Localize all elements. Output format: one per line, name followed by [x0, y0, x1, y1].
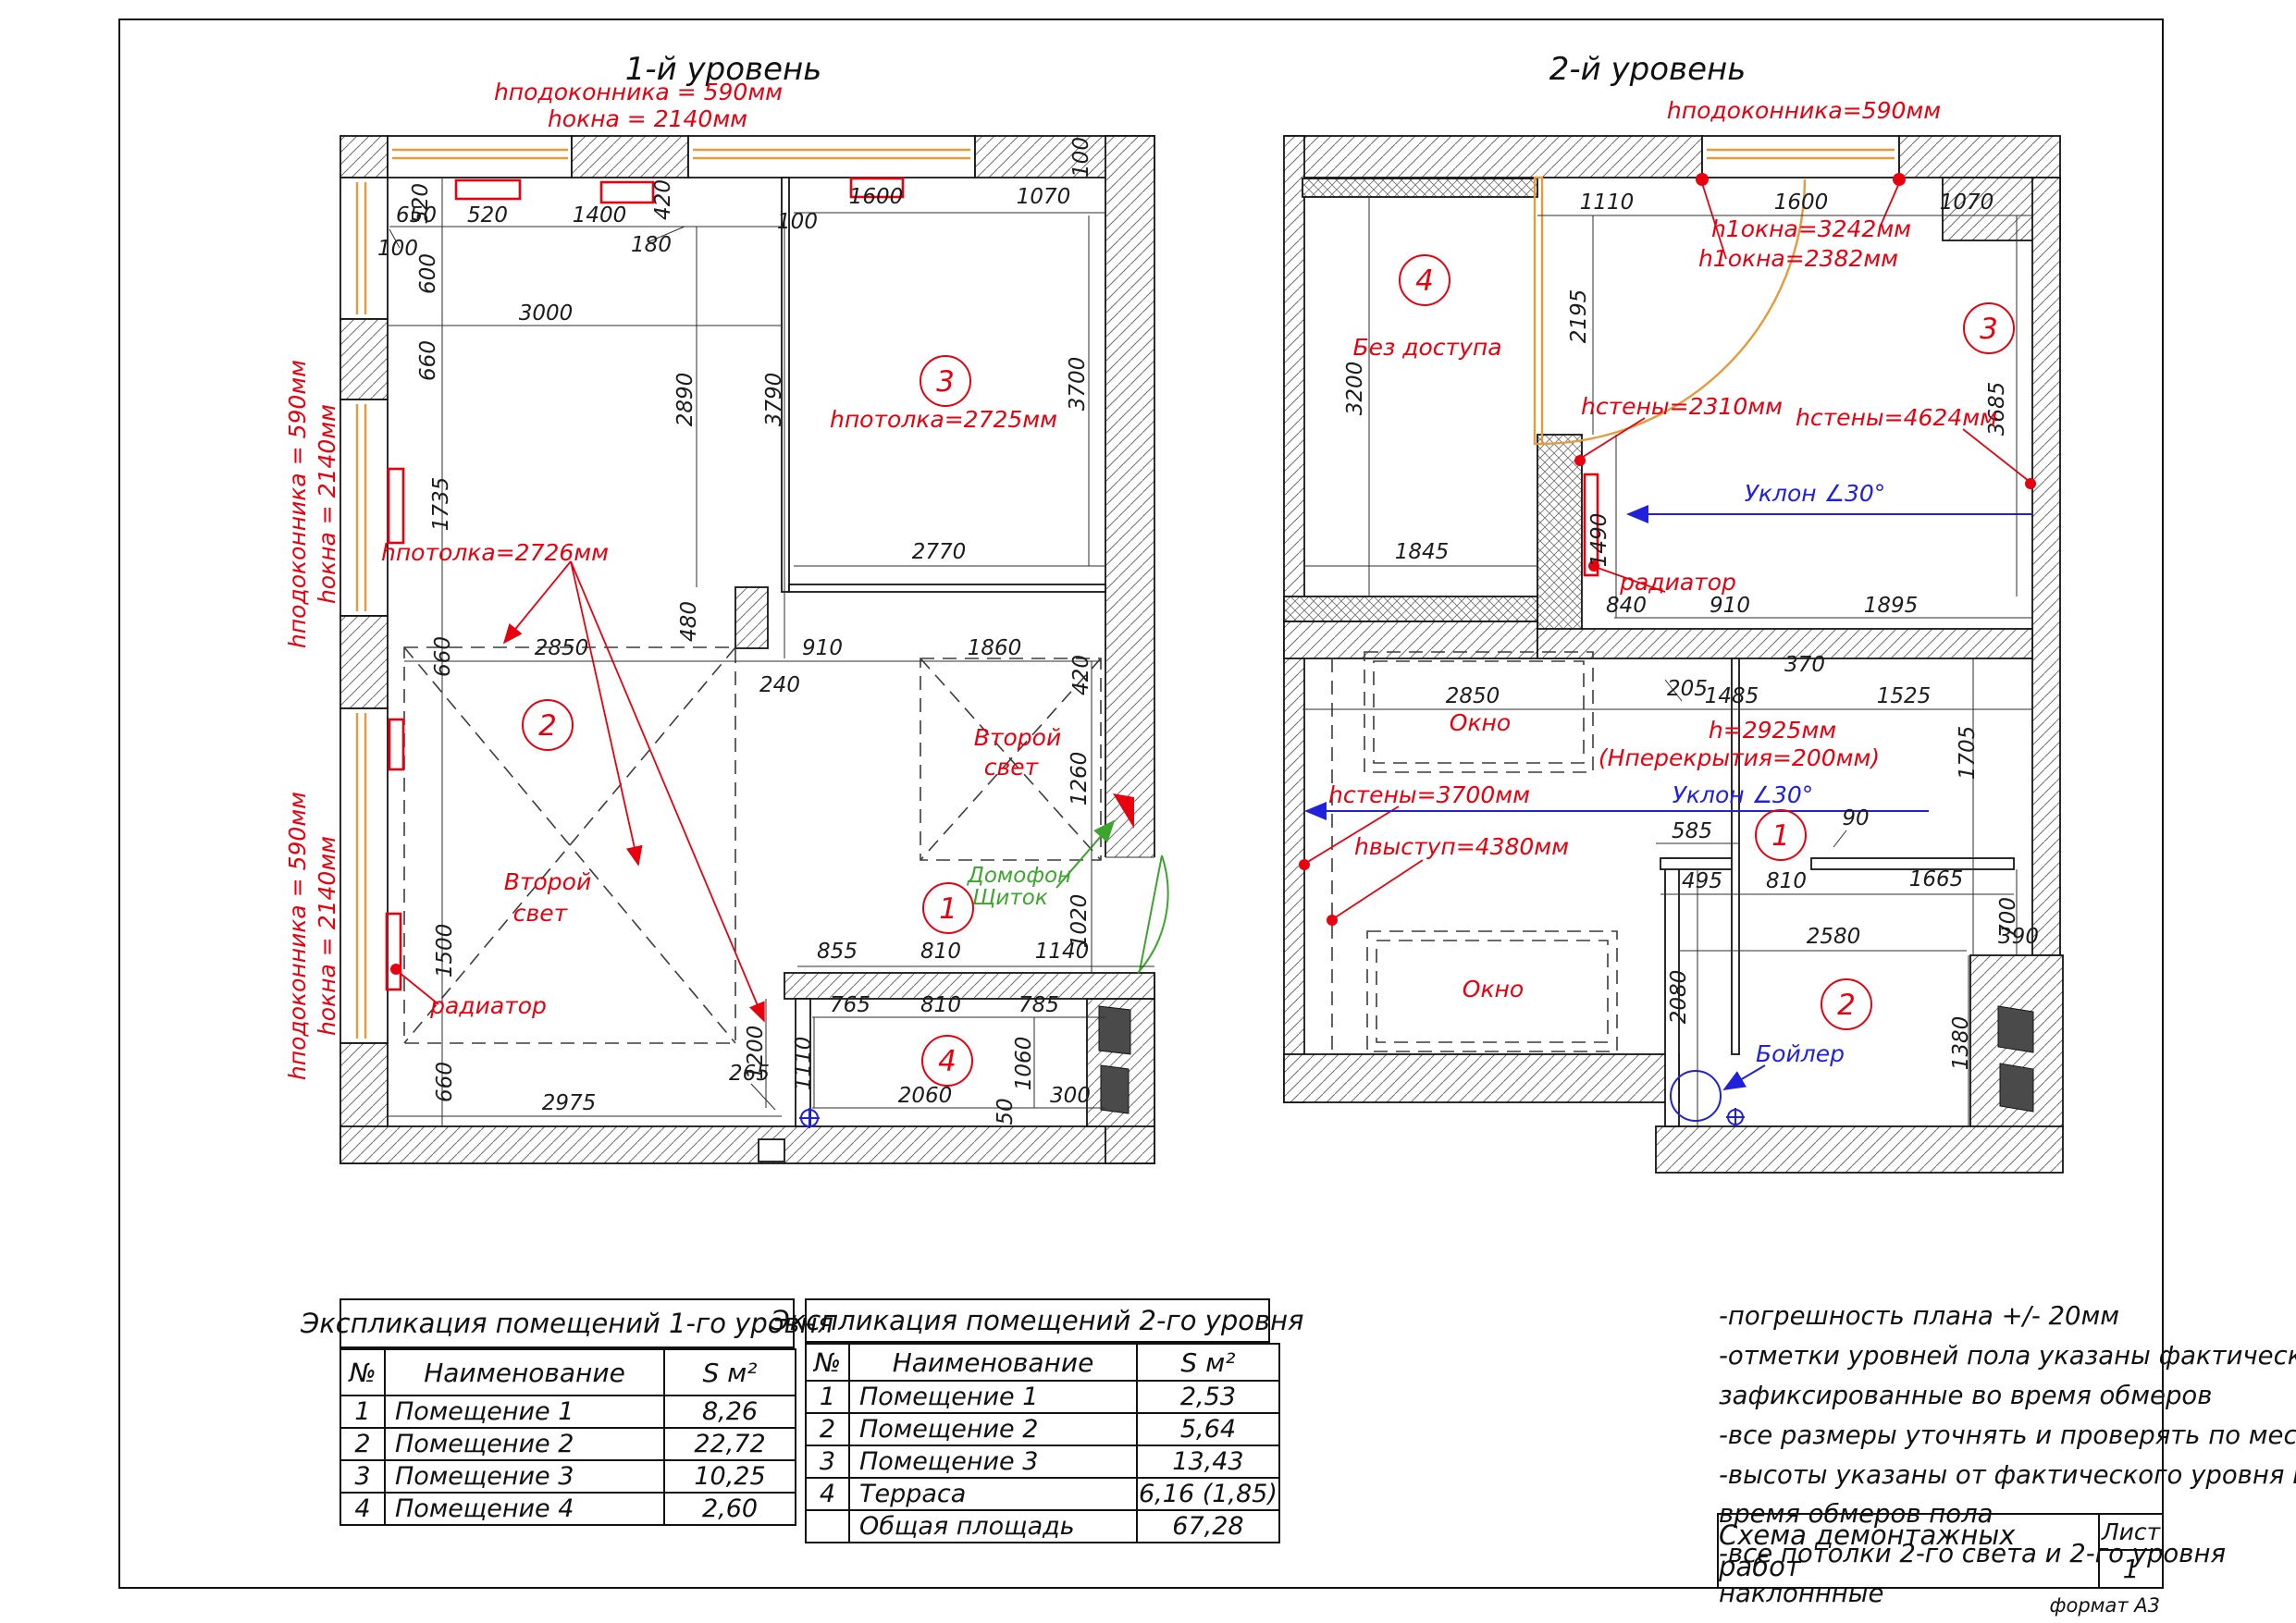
- wall: [340, 1126, 1154, 1163]
- dim-label: 90: [1842, 806, 1869, 830]
- dim-label: 1260: [1068, 752, 1092, 806]
- room-number: 3: [936, 365, 955, 399]
- table-row: 1Помещение 12,53: [806, 1381, 1279, 1413]
- radiator: [389, 719, 403, 769]
- wall: [789, 584, 1105, 592]
- dim-label: hстены=2310мм: [1581, 393, 1783, 420]
- dim-label: 1600: [1774, 191, 1829, 215]
- radiator: [387, 914, 401, 990]
- notes-line: -высоты указаны от фактического уровня в…: [1719, 1456, 2274, 1495]
- dim-label: hстены=3700мм: [1328, 781, 1530, 808]
- table-title: Экспликация помещений 1-го уровня: [339, 1298, 795, 1348]
- table-cell: 13,43: [1137, 1445, 1279, 1478]
- col-header-area: S м²: [1137, 1344, 1279, 1381]
- wall: [735, 587, 768, 648]
- drain-symbol: [1726, 1108, 1745, 1126]
- table-cell: Помещение 3: [385, 1460, 664, 1493]
- table-cell: 2,60: [664, 1493, 796, 1525]
- table-cell: 10,25: [664, 1460, 796, 1493]
- dim-label: 660: [431, 636, 455, 677]
- dim-label: свет: [984, 754, 1040, 781]
- room-number: 1: [939, 892, 957, 926]
- rooms-table-level2: Экспликация помещений 2-го уровня № Наим…: [805, 1298, 1280, 1543]
- wall: [1899, 136, 2060, 178]
- table-cell: Терраса: [849, 1478, 1137, 1510]
- dim-label: 3000: [519, 301, 574, 326]
- dim-label: 370: [1784, 653, 1825, 677]
- dim-label: 585: [1672, 819, 1712, 843]
- level2-plan: 2-й уровеньhподоконника=590мм11101600107…: [1284, 51, 2063, 1173]
- wall: [1284, 1054, 1679, 1102]
- drawing-title: Схема демонтажных работ: [1719, 1515, 2100, 1587]
- col-header-num: №: [806, 1344, 849, 1381]
- dim-label: 520: [467, 203, 508, 227]
- table-cell: Помещение 1: [385, 1396, 664, 1428]
- dim-label: Второй: [504, 868, 591, 895]
- dim-label: 2580: [1807, 925, 1861, 949]
- table-row: 2Помещение 222,72: [340, 1428, 796, 1460]
- table-cell: 1: [340, 1396, 385, 1428]
- dim-label: hпотолка=2725мм: [830, 406, 1057, 433]
- table-row: 2Помещение 25,64: [806, 1413, 1279, 1445]
- dim-label: 100: [377, 237, 418, 261]
- room-number: 4: [1415, 264, 1434, 298]
- dim-label: 1860: [968, 636, 1022, 660]
- dim-label: 810: [920, 993, 961, 1017]
- dim-label: 600: [416, 253, 440, 294]
- room-number: 1: [1771, 819, 1790, 853]
- wall: [572, 136, 688, 178]
- dim-label: 1140: [1035, 940, 1090, 964]
- dim-label: hстены=4624мм: [1796, 404, 1997, 431]
- dim-label: 100: [777, 210, 818, 234]
- dim-label: 660: [416, 340, 440, 381]
- table-cell: Помещение 4: [385, 1493, 664, 1525]
- window-opening: [1702, 136, 1899, 178]
- vent-marker: [601, 182, 653, 203]
- dim-label: 50: [994, 1098, 1018, 1125]
- dim-label: 855: [817, 940, 858, 964]
- dim-label: h1окна=2382мм: [1698, 245, 1898, 272]
- dim-label: hподоконника = 590мм: [494, 79, 783, 105]
- table-row: 4Терраса6,16 (1,85): [806, 1478, 1279, 1510]
- dim-label: 3200: [1343, 362, 1367, 416]
- window-opening: [388, 136, 572, 178]
- dim-label: 420: [1069, 655, 1093, 695]
- dim-label: 100: [1069, 137, 1093, 178]
- dim-label: 390: [1998, 925, 2039, 949]
- table-cell: 4: [340, 1493, 385, 1525]
- dim-label: 660: [433, 1062, 457, 1102]
- dim-label: 1500: [433, 924, 457, 978]
- title-block: Схема демонтажных работ Лист 1: [1717, 1513, 2164, 1589]
- dim-label: 1070: [1940, 191, 1994, 215]
- table-cell: Помещение 3: [849, 1445, 1137, 1478]
- table-row: 1Помещение 18,26: [340, 1396, 796, 1428]
- dim-label: h1окна=3242мм: [1711, 215, 1911, 242]
- room-number: 4: [938, 1045, 957, 1078]
- dim-label: 2195: [1567, 289, 1591, 344]
- table-row: 3Помещение 313,43: [806, 1445, 1279, 1478]
- table-row: Общая площадь67,28: [806, 1510, 1279, 1543]
- dim-label: Второй: [974, 724, 1061, 751]
- table-cell: 2,53: [1137, 1381, 1279, 1413]
- dim-label: Окно: [1450, 709, 1511, 736]
- wall-niche: [759, 1139, 784, 1162]
- table-title: Экспликация помещений 2-го уровня: [805, 1298, 1270, 1343]
- dim-label: hпотолка=2726мм: [381, 539, 609, 566]
- dim-label: 1485: [1705, 684, 1759, 708]
- dim-label: радиатор: [429, 992, 547, 1019]
- wall: [1284, 621, 1537, 658]
- dim-label: (Hперекрытия=200мм): [1599, 744, 1880, 771]
- dim-label: 1525: [1877, 684, 1932, 708]
- dim-label: 2060: [898, 1084, 953, 1108]
- rooms-table-level1: Экспликация помещений 1-го уровня № Наим…: [339, 1298, 796, 1526]
- format-note: формат А3: [1980, 1594, 2160, 1617]
- dim-label: 910: [1710, 594, 1750, 618]
- table-cell: 8,26: [664, 1396, 796, 1428]
- dim-label: Уклон ∠30°: [1673, 781, 1814, 808]
- dim-label: h=2925мм: [1709, 717, 1836, 744]
- dim-label: 240: [759, 673, 800, 697]
- table-cell: Общая площадь: [849, 1510, 1137, 1543]
- table-cell: 4: [806, 1478, 849, 1510]
- plan-title: 2-й уровень: [1549, 51, 1747, 88]
- dim-label: 1490: [1587, 513, 1611, 568]
- dim-label: hвыступ=4380мм: [1354, 833, 1569, 860]
- terrace-window: [1099, 1006, 1130, 1054]
- dim-label: 2850: [1446, 684, 1500, 708]
- wall: [2032, 178, 2060, 955]
- dim-label: 2770: [912, 540, 967, 564]
- dim-label: Бойлер: [1756, 1040, 1845, 1067]
- dim-label: hокна = 2140мм: [314, 404, 340, 604]
- table-cell: Помещение 1: [849, 1381, 1137, 1413]
- table-cell: 2: [806, 1413, 849, 1445]
- room-number: 3: [1980, 313, 1998, 346]
- wall: [340, 136, 388, 178]
- wall: [1286, 136, 1702, 178]
- demolition-wall: [1302, 178, 1537, 197]
- dim-label: hподоконника = 590мм: [284, 360, 311, 648]
- dim-label: Уклон ∠30°: [1745, 480, 1886, 507]
- room-number: 2: [538, 709, 557, 743]
- door-leaf: [1535, 178, 1542, 444]
- dim-label: 2975: [542, 1091, 597, 1115]
- wall: [1656, 1126, 2063, 1173]
- dim-label: 1070: [1017, 185, 1071, 209]
- dim-label: 300: [1050, 1084, 1091, 1108]
- terrace-window: [1101, 1065, 1129, 1113]
- dim-label: 1400: [573, 203, 627, 227]
- window: [1998, 1006, 2033, 1052]
- dim-label: 1060: [1012, 1037, 1036, 1091]
- dim-label: радиатор: [1619, 569, 1736, 596]
- wall: [1660, 858, 1733, 869]
- level2-labels: 2-й уровеньhподоконника=590мм11101600107…: [1328, 51, 2039, 1070]
- dim-label: 785: [1018, 993, 1059, 1017]
- table-cell: 22,72: [664, 1428, 796, 1460]
- table-cell: 2: [340, 1428, 385, 1460]
- wall: [340, 616, 388, 708]
- window-opening: [688, 136, 975, 178]
- dim-label: Домофон: [967, 864, 1071, 888]
- dim-label: 1380: [1949, 1016, 1973, 1071]
- dim-label: hподоконника = 590мм: [284, 792, 311, 1080]
- dim-label: 1895: [1864, 594, 1919, 618]
- table-cell: 6,16 (1,85): [1137, 1478, 1279, 1510]
- window-opening: [340, 708, 388, 1043]
- dim-label: hокна = 2140мм: [548, 105, 747, 132]
- window-opening: [340, 400, 388, 616]
- table-row: 4Помещение 42,60: [340, 1493, 796, 1525]
- dim-label: 2080: [1667, 970, 1691, 1025]
- window: [2000, 1064, 2033, 1112]
- dim-label: Окно: [1463, 976, 1524, 1002]
- notes-line: -все размеры уточнять и проверять по мес…: [1719, 1416, 2274, 1456]
- dim-label: 2890: [673, 373, 697, 427]
- dim-label: 1705: [1956, 726, 1980, 781]
- col-header-num: №: [340, 1349, 385, 1396]
- dim-label: свет: [513, 900, 569, 927]
- table-row: 3Помещение 310,25: [340, 1460, 796, 1493]
- dim-label: 810: [1766, 869, 1807, 893]
- col-header-name: Наименование: [849, 1344, 1137, 1381]
- dim-label: 810: [920, 940, 961, 964]
- dim-label: 180: [631, 233, 672, 257]
- table-cell: 3: [340, 1460, 385, 1493]
- demolition-wall: [1284, 596, 1537, 621]
- dim-label: 3790: [762, 373, 786, 427]
- dim-label: 205: [1667, 677, 1708, 701]
- dim-label: hподоконника=590мм: [1667, 97, 1941, 124]
- table-cell: Помещение 2: [385, 1428, 664, 1460]
- dim-label: 520: [409, 183, 433, 224]
- sheet-number: 1: [2100, 1551, 2162, 1587]
- door-opening: [1104, 857, 1156, 974]
- level1-plan: 1-й уровеньhподоконника = 590ммhокна = 2…: [284, 51, 1168, 1163]
- demolition-wall: [1537, 435, 1582, 658]
- dim-label: 265: [729, 1062, 770, 1086]
- table-cell: Помещение 2: [849, 1413, 1137, 1445]
- dim-label: 1110: [1580, 191, 1635, 215]
- dim-label: hокна = 2140мм: [314, 836, 340, 1036]
- dim-label: Щиток: [972, 886, 1048, 910]
- dim-label: 3700: [1066, 357, 1090, 412]
- dim-label: 2850: [535, 636, 589, 660]
- col-header-name: Наименование: [385, 1349, 664, 1396]
- dim-label: 1665: [1909, 867, 1964, 891]
- dim-label: 480: [677, 601, 701, 642]
- table-cell: [806, 1510, 849, 1543]
- dim-label: 1845: [1395, 540, 1450, 564]
- dim-label: 765: [830, 993, 870, 1017]
- notes-line: -отметки уровней пола указаны фактически…: [1719, 1336, 2274, 1376]
- dim-label: 1110: [792, 1037, 816, 1091]
- table-cell: 1: [806, 1381, 849, 1413]
- dim-label: 1600: [849, 185, 904, 209]
- room-number: 2: [1837, 989, 1856, 1022]
- dim-label: 420: [651, 179, 675, 220]
- col-header-area: S м²: [664, 1349, 796, 1396]
- notes-line: -погрешность плана +/- 20мм: [1719, 1297, 2274, 1336]
- dim-label: 840: [1606, 594, 1647, 618]
- table-cell: 67,28: [1137, 1510, 1279, 1543]
- dim-label: 1735: [429, 477, 453, 532]
- radiator: [389, 469, 403, 543]
- wall: [340, 319, 388, 400]
- dim-label: Без доступа: [1352, 334, 1501, 361]
- table-cell: 3: [806, 1445, 849, 1478]
- table-cell: 5,64: [1137, 1413, 1279, 1445]
- dim-label: 910: [802, 636, 843, 660]
- sheet-label: Лист: [2100, 1515, 2162, 1551]
- notes-line: зафиксированные во время обмеров: [1719, 1376, 2274, 1416]
- dim-label: 495: [1682, 869, 1722, 893]
- vent-marker: [456, 180, 520, 199]
